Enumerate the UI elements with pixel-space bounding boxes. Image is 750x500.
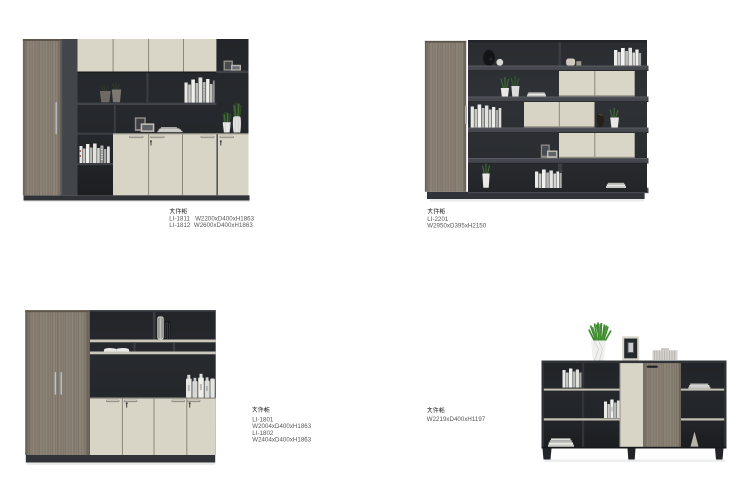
svg-text:W2219xD400xH1197: W2219xD400xH1197 (427, 416, 486, 423)
svg-text:W2950xD395xH2150: W2950xD395xH2150 (427, 222, 486, 229)
svg-text:LI-1812 W2600xD400xH1863: LI-1812 W2600xD400xH1863 (169, 222, 253, 229)
svg-text:W2404xD400xH1863: W2404xD400xH1863 (252, 437, 311, 444)
